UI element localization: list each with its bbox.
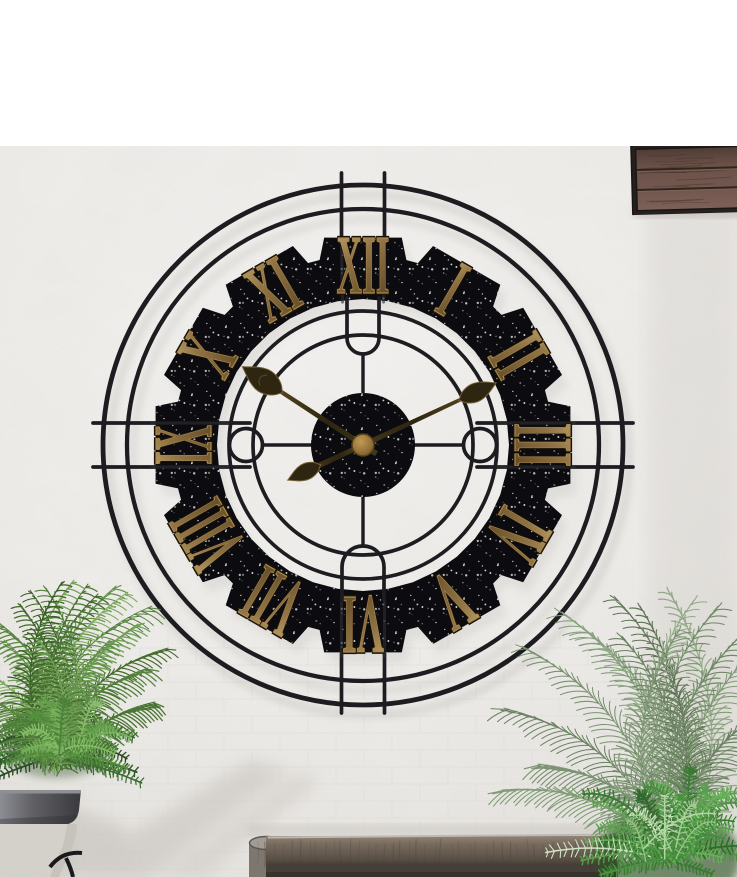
svg-text:VI: VI bbox=[342, 578, 384, 671]
svg-text:XII: XII bbox=[337, 219, 390, 312]
svg-text:IX: IX bbox=[137, 425, 230, 465]
svg-text:III: III bbox=[496, 423, 589, 467]
